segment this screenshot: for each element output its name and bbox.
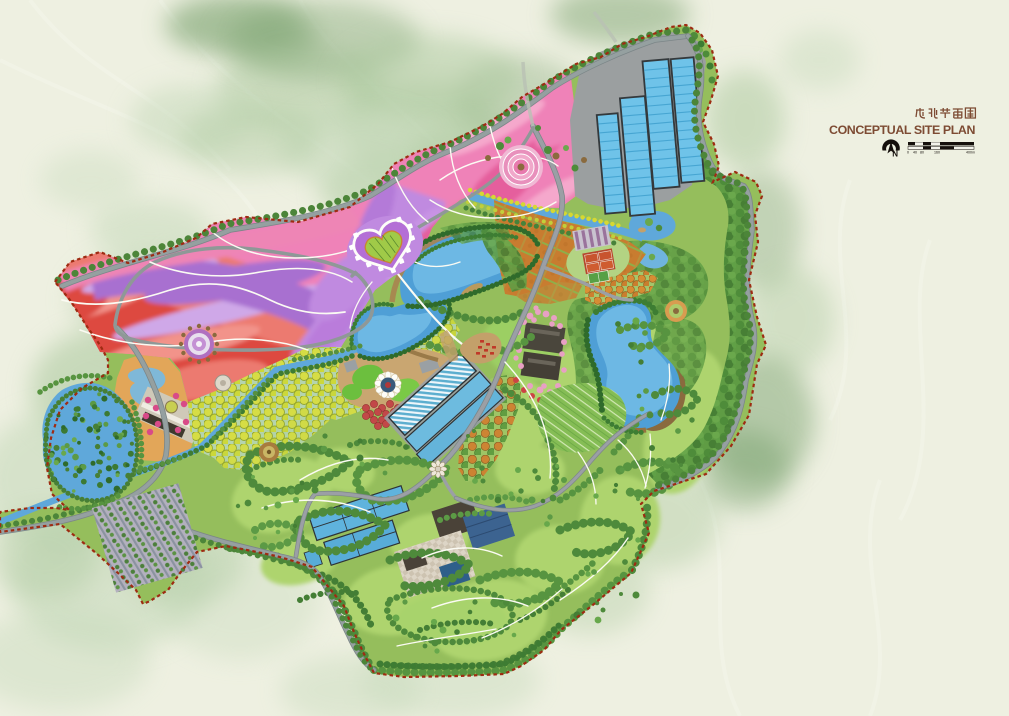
svg-text:CONCEPTUAL SITE PLAN: CONCEPTUAL SITE PLAN bbox=[829, 123, 975, 137]
svg-text:400m: 400m bbox=[966, 150, 975, 154]
svg-text:80: 80 bbox=[920, 150, 924, 154]
svg-text:0: 0 bbox=[907, 150, 909, 154]
svg-text:160: 160 bbox=[934, 150, 940, 154]
svg-text:N: N bbox=[892, 150, 898, 159]
svg-text:40: 40 bbox=[913, 150, 917, 154]
